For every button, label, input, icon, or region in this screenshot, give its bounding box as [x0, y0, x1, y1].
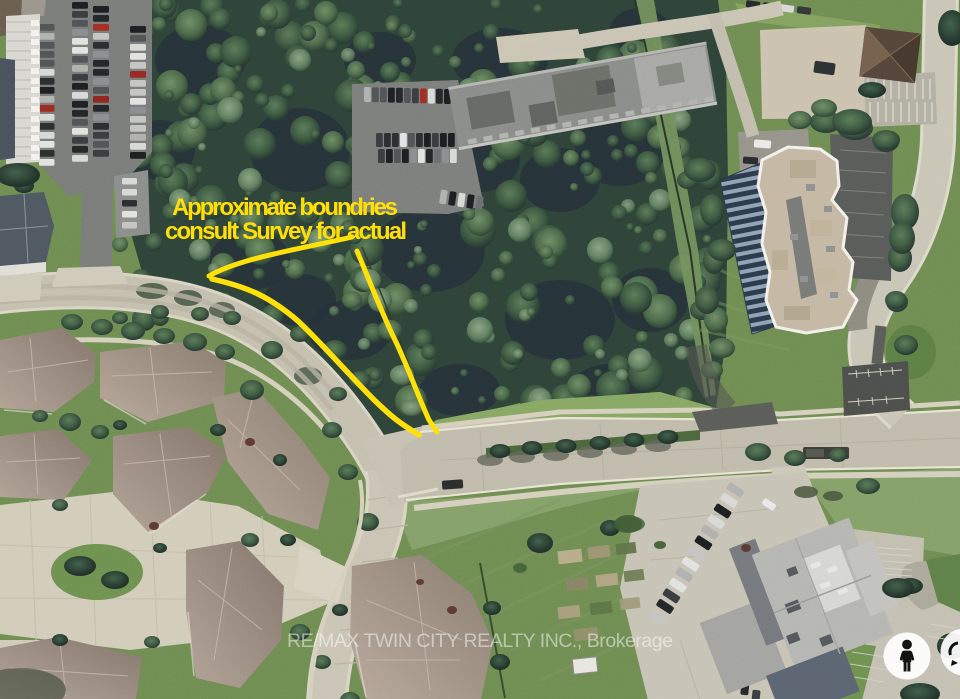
svg-text:RE/MAX TWIN CITY REALTY INC.,: RE/MAX TWIN CITY REALTY INC., Brokerage	[287, 630, 673, 652]
svg-text:consult Survey for actual: consult Survey for actual	[165, 218, 407, 245]
svg-text:Approximate boundries: Approximate boundries	[172, 194, 398, 221]
